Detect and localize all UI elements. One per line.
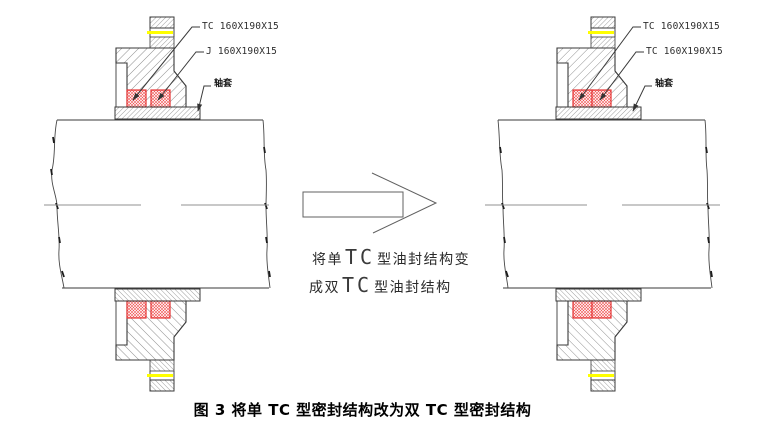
annotation-2-tc: TC bbox=[342, 273, 372, 297]
top-cap bbox=[591, 17, 615, 28]
annotation-2-suffix: 型油封结构 bbox=[374, 280, 452, 296]
right-seal2-label: TC 160X190X15 bbox=[646, 47, 723, 57]
right-seal1-label: TC 160X190X15 bbox=[643, 22, 720, 32]
annotation-2-prefix: 成双 bbox=[309, 280, 340, 296]
seal-j bbox=[151, 90, 170, 107]
annotation-line-1: 将单TC型油封结构变 bbox=[312, 245, 470, 269]
break-ticks bbox=[51, 137, 270, 277]
left-bottom-assembly bbox=[115, 289, 200, 391]
shaft-break-lines bbox=[52, 120, 270, 288]
left-sleeve-label: 轴套 bbox=[214, 80, 232, 89]
figure-caption: 图 3 将单 TC 型密封结构改为双 TC 型密封结构 bbox=[0, 401, 725, 419]
left-diagram bbox=[44, 17, 270, 391]
arrow-body bbox=[303, 192, 403, 217]
engineering-drawing bbox=[0, 0, 764, 431]
shaft-sleeve bbox=[115, 107, 200, 119]
shaft-sleeve bbox=[556, 107, 641, 119]
right-sleeve-label: 轴套 bbox=[655, 80, 673, 89]
annotation-1-tc: TC bbox=[345, 245, 375, 269]
seal-tc-1 bbox=[573, 90, 592, 107]
right-bottom-assembly bbox=[556, 289, 641, 391]
break-ticks bbox=[500, 147, 712, 277]
annotation-1-prefix: 将单 bbox=[312, 252, 343, 268]
left-seal1-label: TC 160X190X15 bbox=[202, 22, 279, 32]
right-diagram bbox=[485, 17, 720, 391]
annotation-line-2: 成双TC型油封结构 bbox=[309, 273, 452, 297]
arrow-chevron bbox=[372, 173, 436, 233]
shaft-break-lines bbox=[498, 120, 712, 288]
neck bbox=[591, 37, 615, 48]
top-cap bbox=[150, 17, 174, 28]
highlight-line bbox=[147, 31, 173, 34]
highlight-line bbox=[588, 31, 614, 34]
left-seal2-label: J 160X190X15 bbox=[206, 47, 277, 57]
transform-arrow bbox=[303, 173, 436, 233]
annotation-1-suffix: 型油封结构变 bbox=[377, 252, 470, 268]
figure-canvas: TC 160X190X15 J 160X190X15 轴套 TC 160X190… bbox=[0, 0, 764, 431]
seal-tc bbox=[127, 90, 146, 107]
neck bbox=[150, 37, 174, 48]
right-top-assembly bbox=[556, 17, 641, 119]
